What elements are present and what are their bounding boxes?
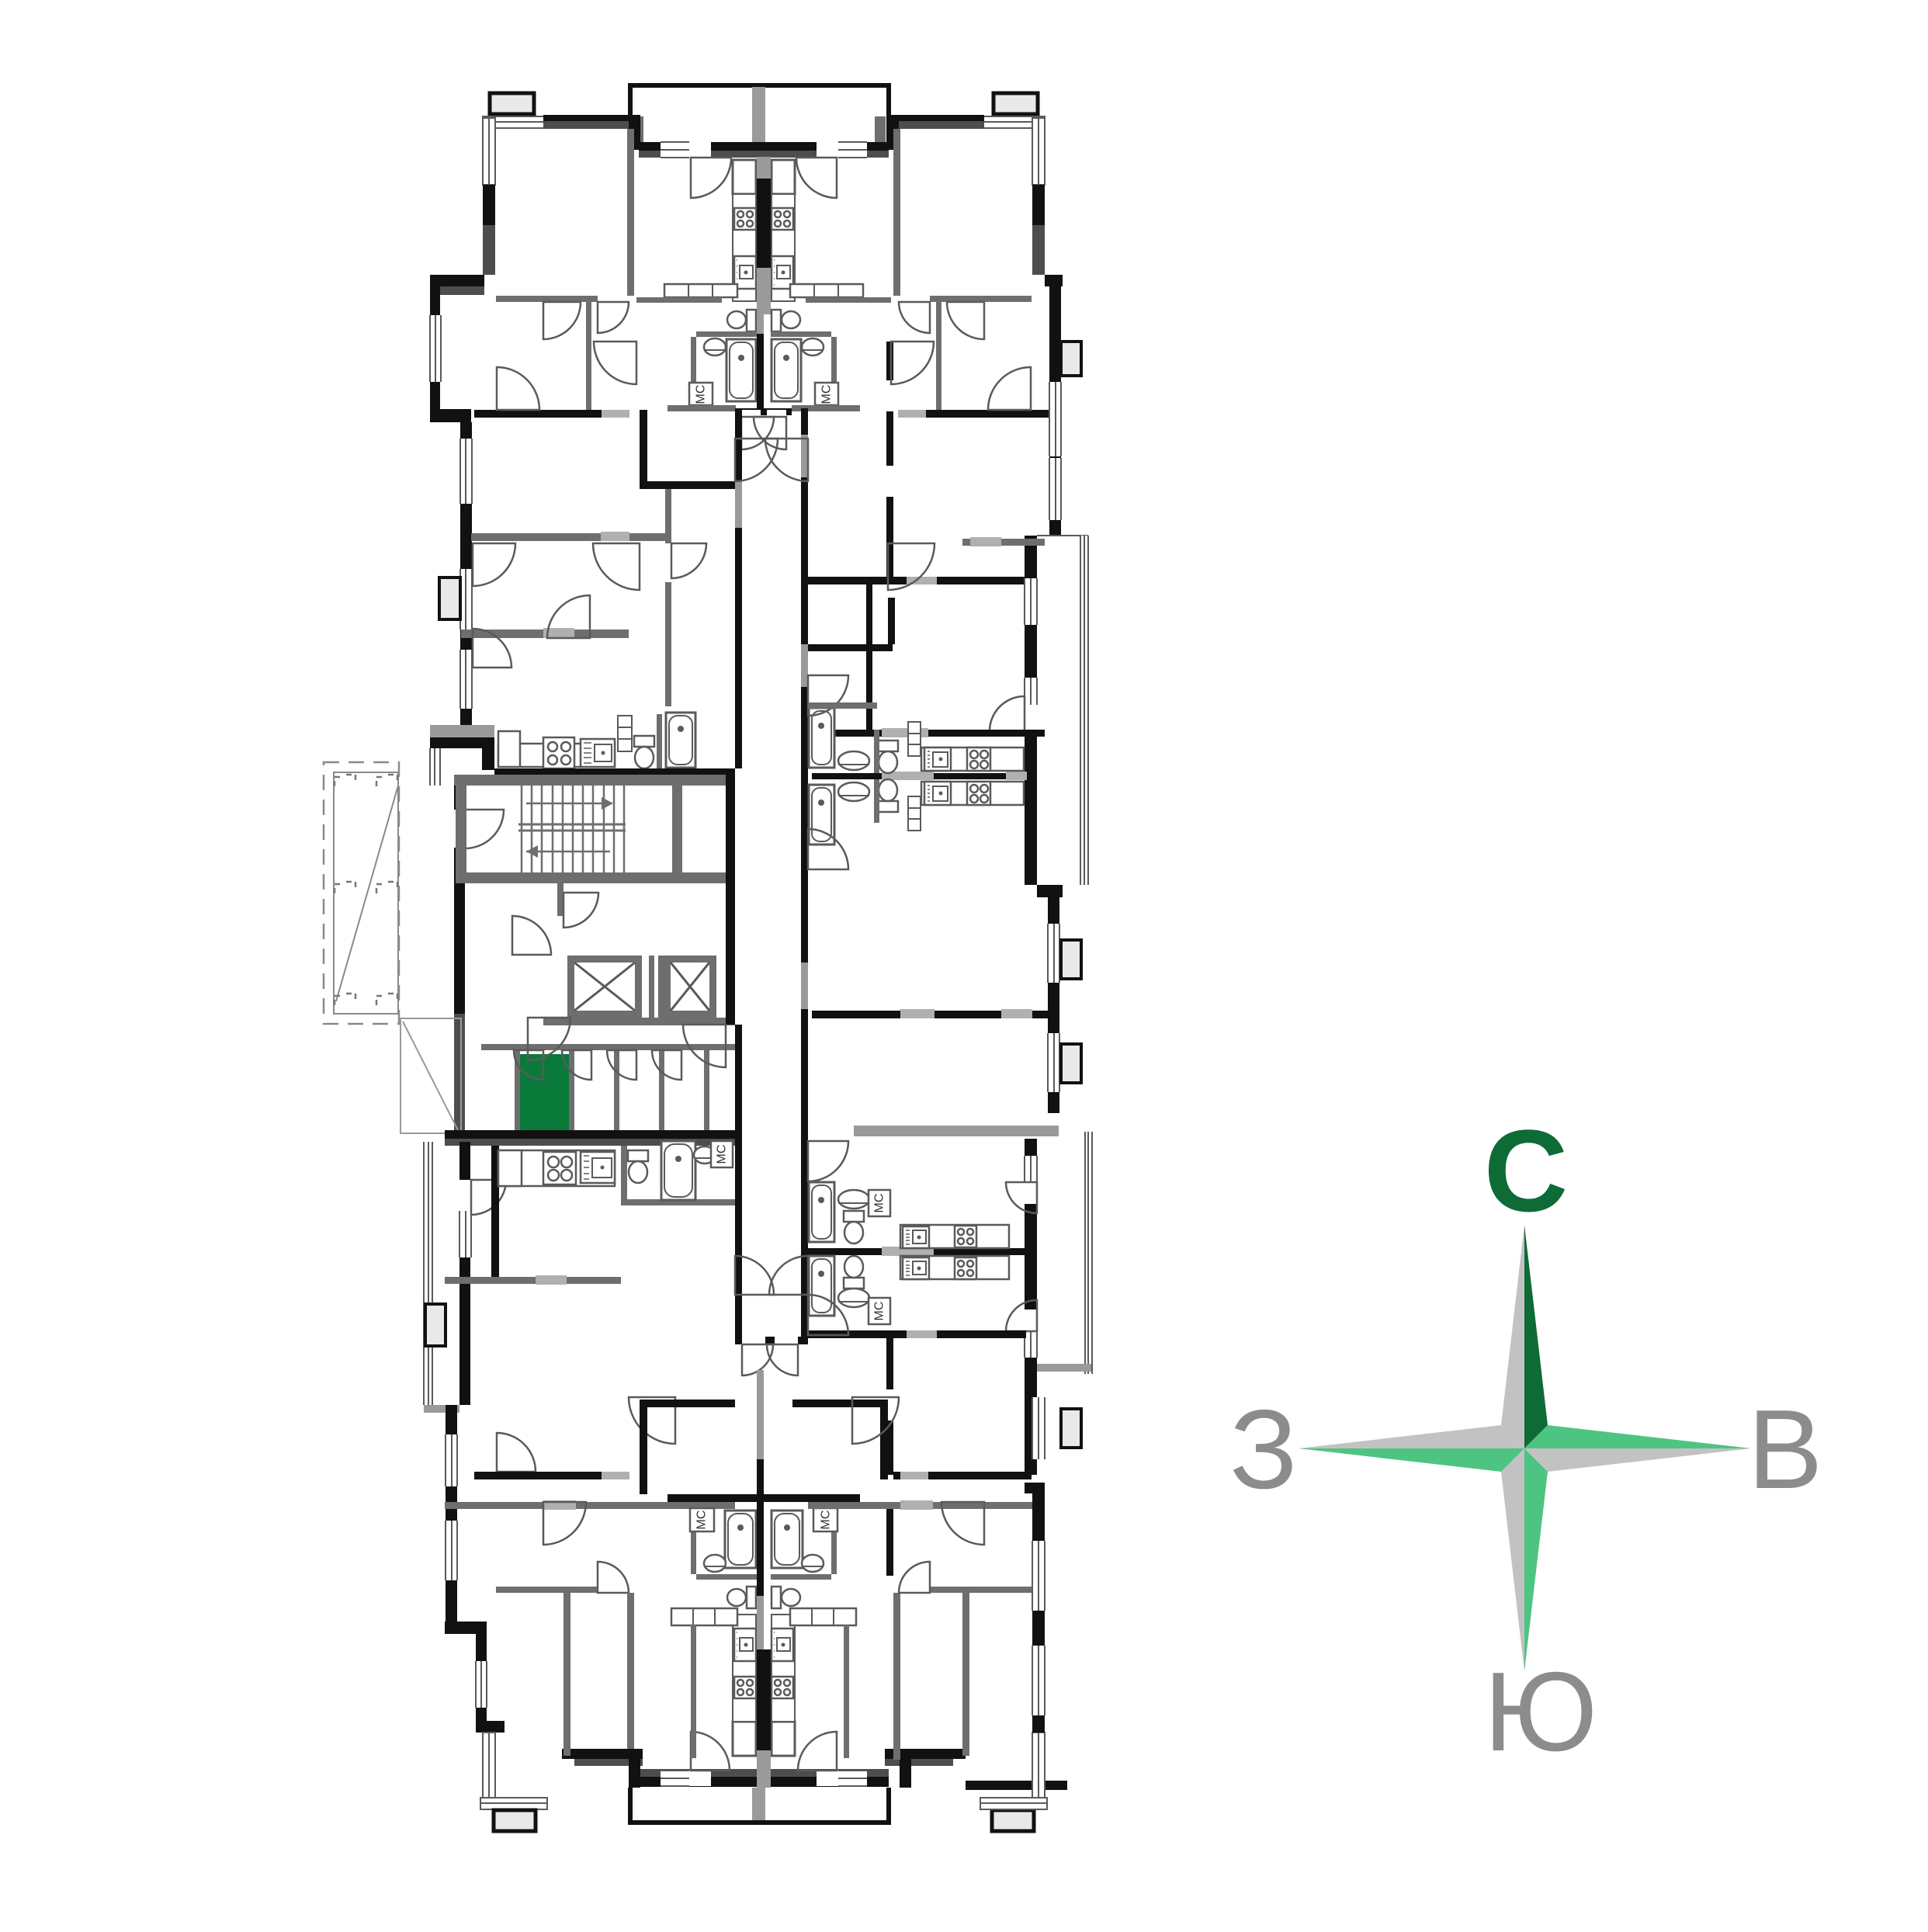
svg-text:В: В: [1748, 1386, 1823, 1512]
svg-text:МС: МС: [820, 1511, 833, 1530]
svg-text:МС: МС: [873, 1194, 886, 1213]
svg-text:Ю: Ю: [1484, 1649, 1598, 1774]
svg-text:МС: МС: [716, 1145, 729, 1164]
svg-text:МС: МС: [695, 385, 708, 404]
svg-text:МС: МС: [820, 385, 834, 404]
svg-text:МС: МС: [873, 1302, 886, 1321]
svg-text:МС: МС: [695, 1511, 709, 1530]
svg-text:С: С: [1484, 1105, 1568, 1236]
svg-text:З: З: [1229, 1386, 1298, 1512]
